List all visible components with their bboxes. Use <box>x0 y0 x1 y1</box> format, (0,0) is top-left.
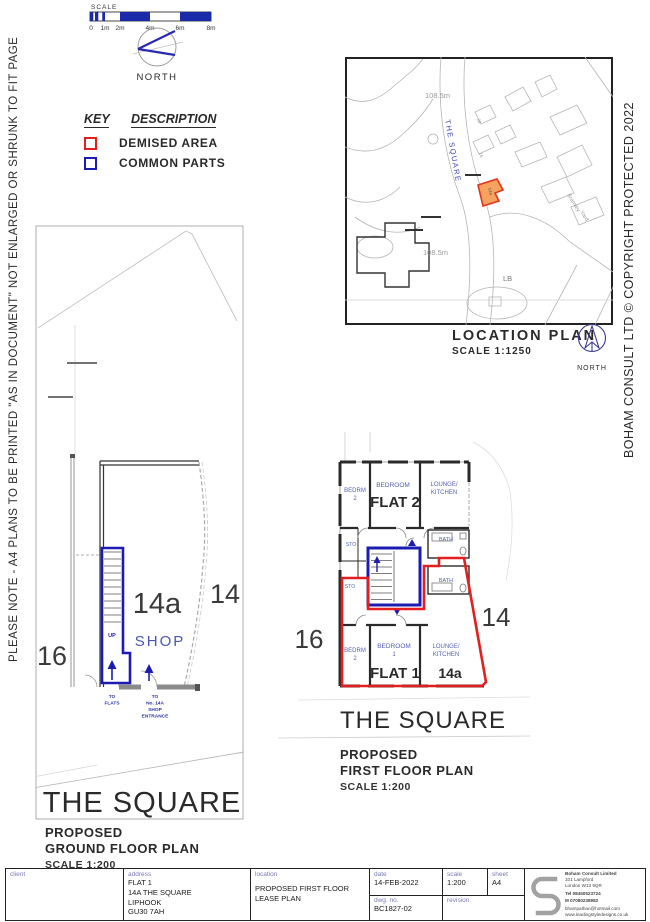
company-logo-icon <box>529 873 561 917</box>
title-block-divider <box>369 895 524 896</box>
print-note-vertical: PLEASE NOTE - A4 PLANS TO BE PRINTED "AS… <box>8 37 20 662</box>
gf-caption-line2: GROUND FLOOR PLAN <box>45 841 199 857</box>
f1-lounge-2: KITCHEN <box>433 652 459 658</box>
to-flats-2: FLATS <box>104 701 120 707</box>
ground-floor-plan: UP 16 14a 14 SHOP TO FLATS TO No. 14A SH… <box>35 225 245 821</box>
scale-bar-segments <box>90 12 211 21</box>
ff-road-edge-1 <box>298 697 530 700</box>
client-cell: client <box>6 869 123 920</box>
f1-bedrm: BEDRM <box>344 648 366 654</box>
address-line2: 14A THE SQUARE <box>128 888 250 898</box>
to-flats-1: TO <box>109 694 116 700</box>
first-floor-caption: PROPOSED FIRST FLOOR PLAN SCALE 1:200 <box>340 747 474 793</box>
north-location-label: NORTH <box>577 365 607 372</box>
address-cell: address FLAT 1 14A THE SQUARE LIPHOOK GU… <box>123 869 250 920</box>
north-arrow-main: NORTH <box>129 24 189 86</box>
address-label: address <box>128 871 250 878</box>
first-floor-plan: BEDRM 2 BEDROOM LOUNGE/ KITCHEN STO STO … <box>278 430 530 745</box>
demised-area-label: DEMISED AREA <box>119 136 218 150</box>
legend-description-heading: DESCRIPTION <box>131 112 216 128</box>
date-cell: date 14-FEB-2022 <box>369 869 442 895</box>
company-addr2: London W13 9QR <box>565 883 628 889</box>
ff-number-14a: 14a <box>438 665 462 681</box>
ff-road-edge-2 <box>278 736 530 738</box>
gf-number-14a: 14a <box>133 588 182 620</box>
address-line3: LIPHOOK <box>128 898 250 908</box>
spot-level-a: 108.5m <box>425 91 450 100</box>
f2-bedrm: BEDRM <box>344 488 366 494</box>
gf-number-16: 16 <box>37 641 67 671</box>
sto-b: STO <box>345 584 355 590</box>
stair-up-label: UP <box>108 633 116 639</box>
ff-number-16: 16 <box>295 624 324 654</box>
common-parts-label: COMMON PARTS <box>119 156 225 170</box>
tick-1m: 1m <box>100 25 109 32</box>
date-label: date <box>374 871 442 878</box>
to-shop-1: TO <box>152 694 159 700</box>
tick-0: 0 <box>89 25 93 32</box>
title-block: client address FLAT 1 14A THE SQUARE LIP… <box>5 868 646 921</box>
copyright-vertical: BOHAM CONSULT LTD © COPYRIGHT PROTECTED … <box>622 102 636 458</box>
to-shop-2: No. 14A <box>146 701 164 707</box>
dwg-cell: dwg. no. BC1827-02 <box>369 895 442 920</box>
location-plan: 14a 28 16 108.5m 108.5m THE SQUARE LB Br… <box>345 57 613 325</box>
tick-2m: 2m <box>115 25 124 32</box>
dwg-value: BC1827-02 <box>374 904 442 914</box>
client-label: client <box>10 871 123 878</box>
revision-label: revision <box>447 897 524 904</box>
flat1-label: FLAT 1 <box>370 665 420 682</box>
location-cell: location PROPOSED FIRST FLOOR LEASE PLAN <box>250 869 369 920</box>
gf-number-14: 14 <box>210 579 240 609</box>
gf-street-name: THE SQUARE <box>43 787 242 819</box>
legend: KEY DESCRIPTION DEMISED AREA COMMON PART… <box>84 112 225 170</box>
address-line4: GU30 7AH <box>128 907 250 917</box>
bath-a: BATH <box>439 537 453 543</box>
sheet-cell: sheet A4 <box>487 869 524 895</box>
north-arrow-location: NORTH <box>572 322 614 376</box>
scale-cell: scale 1:200 <box>442 869 487 895</box>
gf-caption-line1: PROPOSED <box>45 825 199 841</box>
company-details: Boham Consult Limited 101 Lampford Londo… <box>565 871 628 918</box>
f2-bedroom: BEDROOM <box>376 482 410 489</box>
f1-bedrm-no: 2 <box>353 656 357 662</box>
location-label: location <box>255 871 369 878</box>
sto-a: STO <box>346 542 356 548</box>
to-shop-4: ENTRANCE <box>142 714 169 720</box>
f1-bedroom: BEDROOM <box>377 643 411 650</box>
scale-label: scale <box>447 871 487 878</box>
company-website: www.leadingstyledesigns.co.uk <box>565 912 628 918</box>
ground-floor-caption: PROPOSED GROUND FLOOR PLAN SCALE 1:200 <box>45 825 199 871</box>
north-main-label: NORTH <box>136 72 177 83</box>
f2-lounge-1: LOUNGE/ <box>430 482 457 488</box>
company-mobile: M 07080238982 <box>565 898 628 904</box>
f1-bedroom-no: 1 <box>392 652 396 658</box>
f2-lounge-2: KITCHEN <box>431 490 457 496</box>
revision-cell: revision <box>442 895 524 920</box>
location-line2: LEASE PLAN <box>255 894 369 904</box>
dwg-label: dwg. no. <box>374 897 442 904</box>
ff-number-14: 14 <box>482 602 511 632</box>
logo-cell: Boham Consult Limited 101 Lampford Londo… <box>524 869 645 920</box>
date-value: 14-FEB-2022 <box>374 878 442 888</box>
gf-shop-label: SHOP <box>135 633 186 650</box>
f2-bedrm-no: 2 <box>353 496 357 502</box>
address-line1: FLAT 1 <box>128 878 250 888</box>
sheet-label: sheet <box>492 871 524 878</box>
lb-label: LB <box>503 274 512 283</box>
ff-caption-scale: SCALE 1:200 <box>340 781 474 793</box>
legend-key-heading: KEY <box>84 112 109 128</box>
common-parts-swatch <box>84 157 97 170</box>
ff-street-name: THE SQUARE <box>340 707 506 734</box>
location-line1: PROPOSED FIRST FLOOR <box>255 884 369 894</box>
tick-8m: 8m <box>206 25 215 32</box>
f1-lounge-1: LOUNGE/ <box>432 644 459 650</box>
drawing-sheet: PLEASE NOTE - A4 PLANS TO BE PRINTED "AS… <box>0 0 650 922</box>
spot-level-b: 108.5m <box>423 248 448 257</box>
scale-value: 1:200 <box>447 878 487 888</box>
bath-b: BATH <box>439 578 453 584</box>
ff-caption-line1: PROPOSED <box>340 747 474 763</box>
scale-bar-label: SCALE <box>91 4 117 11</box>
ff-common-stair <box>368 539 420 615</box>
to-shop-3: SHOP <box>148 707 162 713</box>
ff-caption-line2: FIRST FLOOR PLAN <box>340 763 474 779</box>
demised-area-swatch <box>84 137 97 150</box>
flat2-label: FLAT 2 <box>370 494 420 511</box>
sheet-value: A4 <box>492 878 524 888</box>
